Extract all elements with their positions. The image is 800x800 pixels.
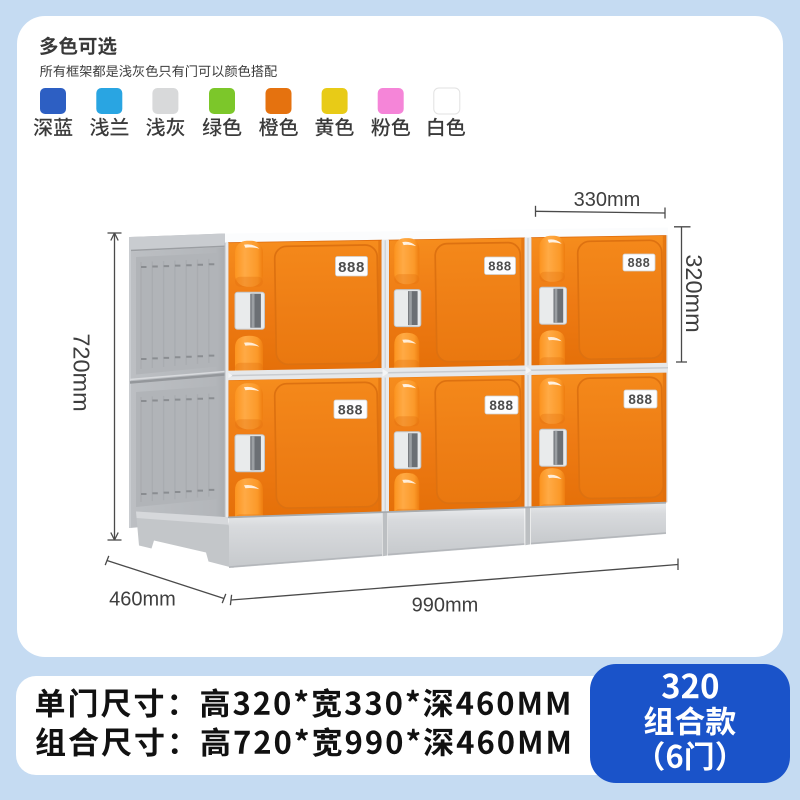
svg-text:888: 888 [628, 392, 652, 407]
svg-text:888: 888 [338, 401, 363, 417]
svg-text:888: 888 [338, 259, 365, 276]
svg-text:720mm: 720mm [69, 333, 95, 411]
svg-text:990mm: 990mm [412, 595, 479, 617]
svg-text:888: 888 [488, 258, 512, 273]
svg-text:888: 888 [489, 398, 513, 413]
svg-text:320mm: 320mm [681, 254, 707, 332]
svg-text:888: 888 [628, 256, 651, 270]
svg-text:460mm: 460mm [109, 589, 176, 611]
svg-text:330mm: 330mm [574, 189, 641, 211]
